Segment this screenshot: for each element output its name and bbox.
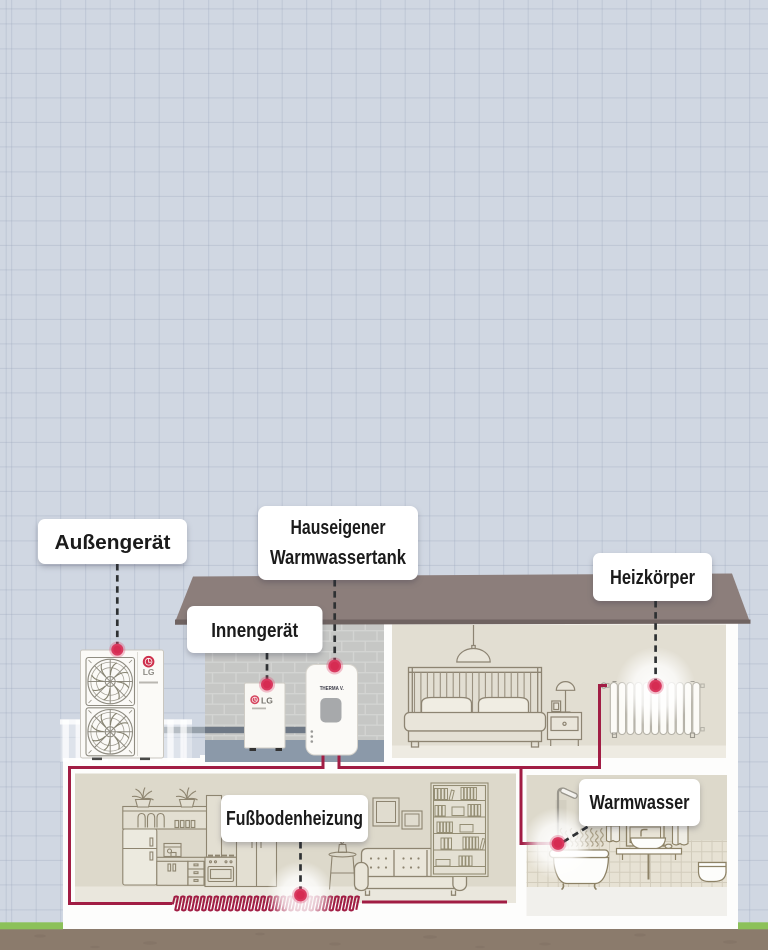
svg-text:LG: LG xyxy=(261,696,273,706)
svg-text:Heizkörper: Heizkörper xyxy=(610,567,695,589)
svg-text:Fußbodenheizung: Fußbodenheizung xyxy=(226,808,363,830)
svg-text:Warmwassertank: Warmwassertank xyxy=(270,547,407,569)
svg-text:Hauseigener: Hauseigener xyxy=(291,517,386,539)
svg-text:Außengerät: Außengerät xyxy=(55,532,171,554)
svg-text:LG: LG xyxy=(143,667,155,677)
svg-text:Warmwasser: Warmwasser xyxy=(590,792,690,814)
svg-text:THERMA V.: THERMA V. xyxy=(320,686,344,692)
svg-text:Innengerät: Innengerät xyxy=(211,620,298,642)
